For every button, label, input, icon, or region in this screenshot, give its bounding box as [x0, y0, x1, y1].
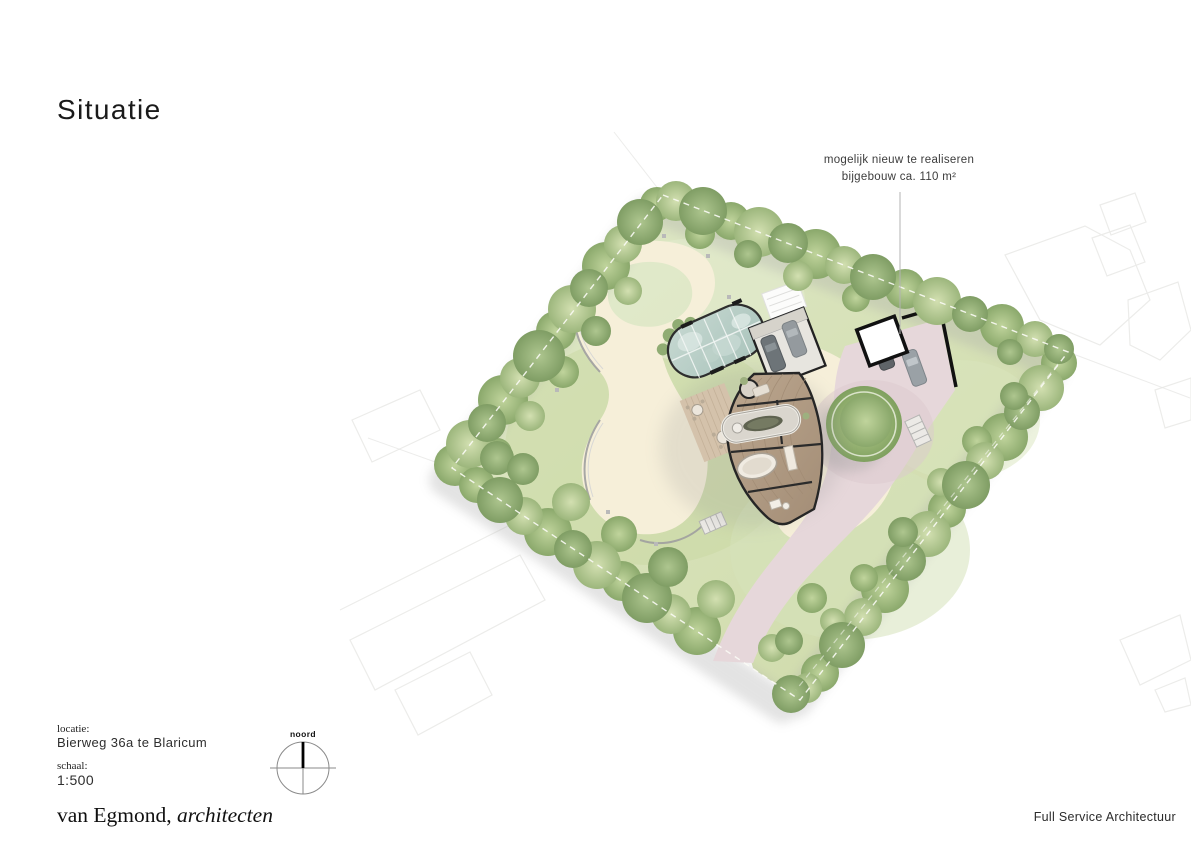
north-label: noord	[276, 729, 330, 739]
logo-regular: van Egmond,	[57, 803, 172, 827]
outbuilding-annotation: mogelijk nieuw te realiseren bijgebouw c…	[789, 152, 1009, 185]
site-plan	[0, 0, 1191, 842]
logo-italic: architecten	[172, 803, 273, 827]
annotation-line-2: bijgebouw ca. 110 m²	[789, 169, 1009, 186]
location-value: Bierweg 36a te Blaricum	[57, 735, 207, 750]
firm-tagline: Full Service Architectuur	[1034, 810, 1176, 824]
scale-label: schaal:	[57, 760, 88, 772]
annotation-line-1: mogelijk nieuw te realiseren	[789, 152, 1009, 169]
location-label: locatie:	[57, 723, 89, 735]
firm-logo: van Egmond, architecten	[57, 803, 273, 828]
page-title: Situatie	[57, 94, 162, 126]
scale-value: 1:500	[57, 772, 94, 788]
north-compass	[270, 740, 336, 806]
